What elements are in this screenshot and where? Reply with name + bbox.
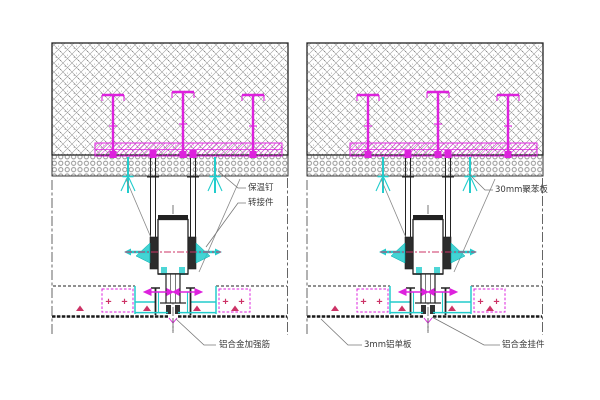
label-stiffener: 铝合金加强筋 xyxy=(219,341,270,350)
label-hanger: 铝合金挂件 xyxy=(502,341,545,350)
label-adapter: 转接件 xyxy=(248,199,274,208)
leader-adapter xyxy=(206,203,246,247)
leader-hanger xyxy=(432,317,500,345)
leader-aluminum-panel xyxy=(321,319,362,345)
label-aluminum-panel: 3mm铝单板 xyxy=(364,341,411,350)
leader-stiffener xyxy=(176,319,216,345)
cad-drawing-canvas: + + + + xyxy=(0,0,600,400)
label-polystyrene-board: 30mm聚苯板 xyxy=(495,186,548,195)
label-insulation-nail: 保温钉 xyxy=(248,184,274,193)
